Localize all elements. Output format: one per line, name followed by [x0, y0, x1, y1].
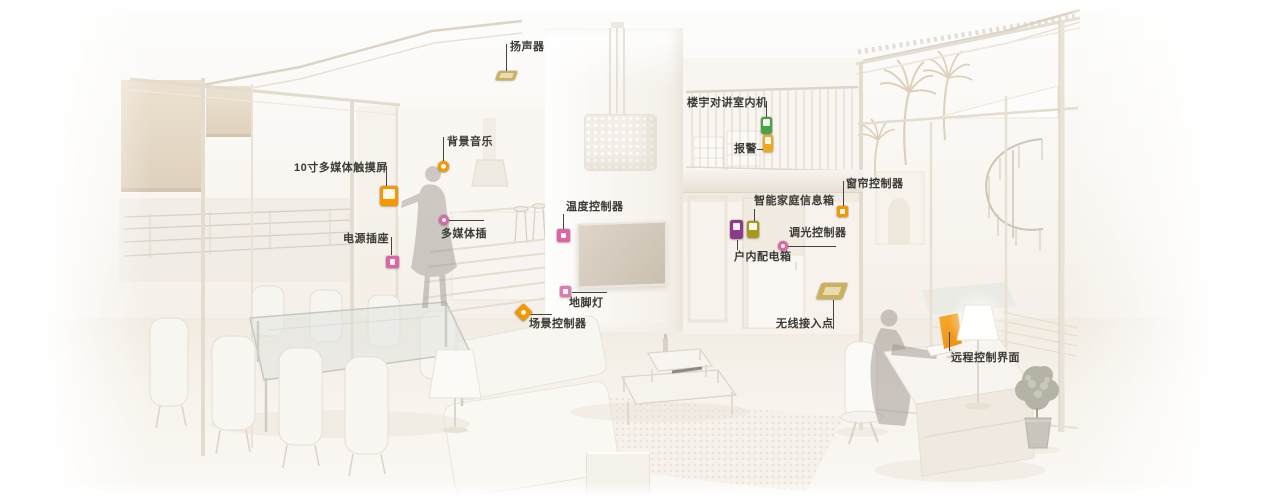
- thermostat-label: 温度控制器: [566, 201, 624, 214]
- distribution-box-icon-inner: [733, 223, 741, 230]
- power-socket-icon-inner: [390, 259, 396, 264]
- annotations-layer: 扬声器背景音乐10寸多媒体触摸屏电源插座多媒体插温度控制器地脚灯场景控制器楼宇对…: [0, 0, 1280, 500]
- power-socket-icon: [386, 256, 399, 268]
- smart-home-infobox-icon-inner: [749, 223, 756, 229]
- touchscreen-icon-inner: [383, 189, 395, 199]
- thermostat-leader-line: [563, 214, 564, 229]
- multimedia-socket-icon: [439, 215, 449, 225]
- smart-home-infobox-leader-line: [754, 209, 755, 221]
- speaker-icon: [495, 71, 517, 80]
- curtain-controller-icon: [837, 206, 848, 217]
- scene-controller-label: 场景控制器: [529, 318, 587, 331]
- intercom-icon-inner: [763, 119, 770, 125]
- thermostat-icon: [557, 229, 570, 242]
- scene-controller-leader-line: [529, 314, 552, 315]
- multimedia-socket-label: 多媒体插: [441, 228, 487, 241]
- smart-home-infobox-icon: [747, 221, 759, 238]
- multimedia-socket-leader-line: [449, 220, 484, 221]
- curtain-controller-label: 窗帘控制器: [846, 178, 904, 191]
- intercom-label: 楼宇对讲室内机: [687, 97, 768, 110]
- footlight-icon-inner: [563, 289, 568, 294]
- distribution-box-icon: [730, 220, 743, 239]
- power-socket-label: 电源插座: [343, 233, 389, 246]
- wireless-ap-icon: [816, 283, 848, 299]
- remote-ui-leader-line: [949, 332, 950, 351]
- dimmer-controller-icon: [778, 241, 788, 251]
- footlight-leader-line: [572, 292, 607, 293]
- smart-home-infobox-label: 智能家庭信息箱: [754, 195, 835, 208]
- wireless-ap-icon-inner: [822, 287, 842, 296]
- background-music-leader-line: [443, 137, 444, 161]
- speaker-icon-inner: [499, 73, 513, 78]
- footlight-icon: [560, 286, 571, 297]
- speaker-label: 扬声器: [510, 41, 545, 54]
- touchscreen-icon: [380, 186, 398, 206]
- smart-home-diagram: 扬声器背景音乐10寸多媒体触摸屏电源插座多媒体插温度控制器地脚灯场景控制器楼宇对…: [0, 0, 1280, 500]
- touchscreen-label: 10寸多媒体触摸屏: [294, 162, 388, 175]
- alarm-label: 报警: [734, 143, 757, 156]
- background-music-icon-inner: [441, 164, 446, 169]
- alarm-icon: [763, 135, 773, 152]
- alarm-icon-inner: [765, 137, 771, 143]
- remote-ui-label: 远程控制界面: [951, 352, 1020, 365]
- footlight-label: 地脚灯: [569, 297, 604, 310]
- background-music-icon: [438, 161, 449, 172]
- distribution-box-label: 户内配电箱: [734, 251, 792, 264]
- background-music-label: 背景音乐: [447, 136, 493, 149]
- multimedia-socket-icon-inner: [442, 218, 447, 223]
- power-socket-leader-line: [391, 237, 392, 255]
- dimmer-controller-leader-line: [788, 246, 836, 247]
- curtain-controller-leader-line: [843, 181, 844, 206]
- thermostat-icon-inner: [561, 233, 567, 239]
- intercom-icon: [761, 117, 772, 134]
- dimmer-controller-label: 调光控制器: [789, 227, 847, 240]
- curtain-controller-icon-inner: [840, 209, 845, 214]
- scene-controller-icon-inner: [520, 309, 527, 316]
- speaker-leader-line: [506, 44, 507, 71]
- distribution-box-leader-line: [737, 240, 738, 250]
- wireless-ap-label: 无线接入点: [776, 318, 834, 331]
- dimmer-controller-icon-inner: [781, 244, 786, 249]
